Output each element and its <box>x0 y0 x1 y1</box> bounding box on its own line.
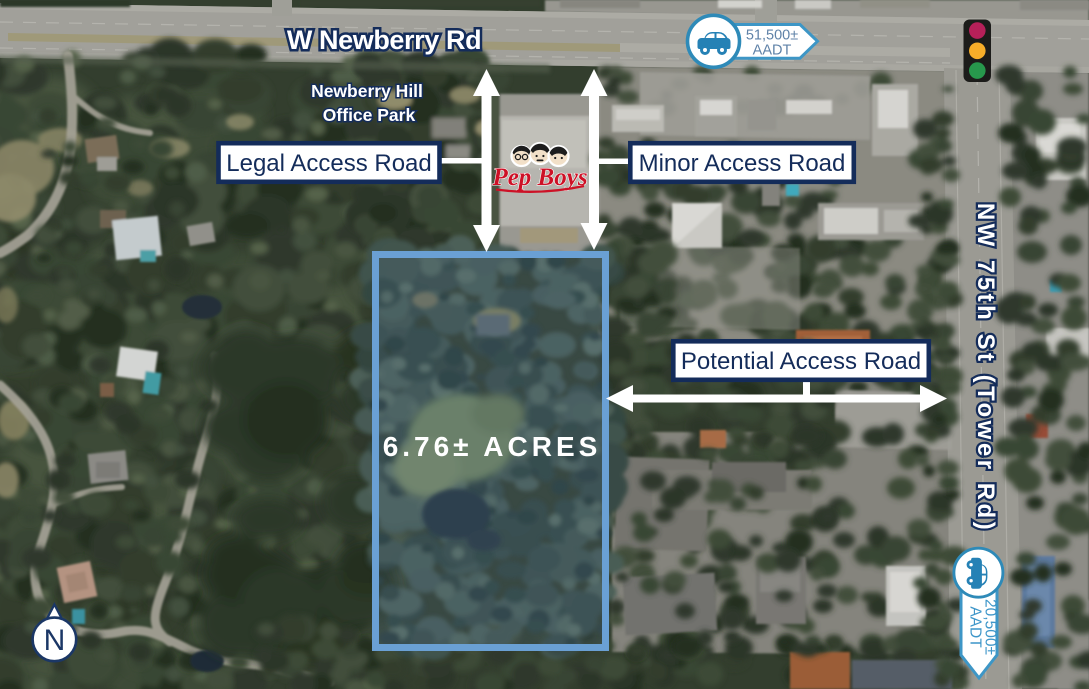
svg-text:N: N <box>44 624 66 657</box>
svg-text:6.76± ACRES: 6.76± ACRES <box>383 431 602 462</box>
svg-text:NW 75th St (Tower Rd): NW 75th St (Tower Rd) <box>972 203 999 533</box>
svg-text:Legal Access Road: Legal Access Road <box>226 150 431 177</box>
svg-text:W Newberry Rd: W Newberry Rd <box>287 25 481 55</box>
svg-text:AADT: AADT <box>967 606 984 648</box>
svg-text:Minor Access Road: Minor Access Road <box>639 150 846 177</box>
svg-text:Office Park: Office Park <box>323 105 416 125</box>
svg-text:Newberry Hill: Newberry Hill <box>311 81 423 101</box>
svg-text:AADT: AADT <box>753 43 792 59</box>
svg-text:51,500±: 51,500± <box>746 28 798 44</box>
svg-text:Potential Access Road: Potential Access Road <box>681 348 921 375</box>
